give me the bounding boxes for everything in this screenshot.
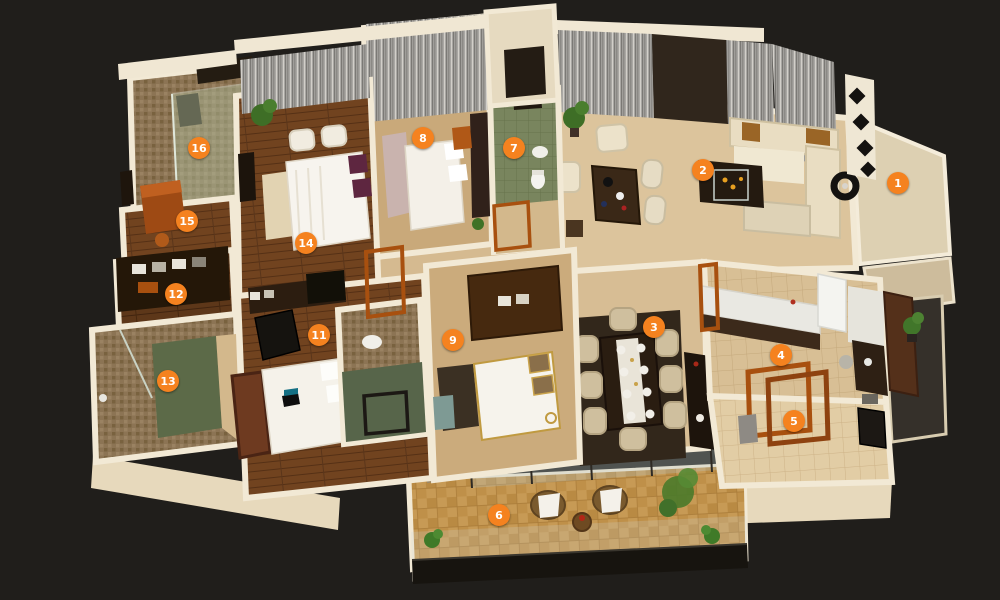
room-marker-kitchen: 4 [770,344,792,366]
room-marker-entrance: 1 [887,172,909,194]
room-marker-living-room: 2 [692,159,714,181]
room-marker-bedroom-3: 9 [442,329,464,351]
room-marker-bathroom-2: 7 [503,137,525,159]
room-marker-master-bedroom: 14 [295,232,317,254]
room-marker-utility-passage: 5 [783,410,805,432]
room-marker-bedroom-4: 11 [308,324,330,346]
room-marker-walk-in-closet: 12 [165,283,187,305]
floor-plan-image: 123456789111213141516 [0,0,1000,600]
room-marker-master-bathroom: 16 [188,137,210,159]
room-marker-bedroom-2: 8 [412,127,434,149]
marker-layer: 123456789111213141516 [0,0,1000,600]
room-marker-dressing-area: 15 [176,210,198,232]
room-marker-dining-area: 3 [643,316,665,338]
room-marker-bathroom-3: 13 [157,370,179,392]
room-marker-balcony: 6 [488,504,510,526]
